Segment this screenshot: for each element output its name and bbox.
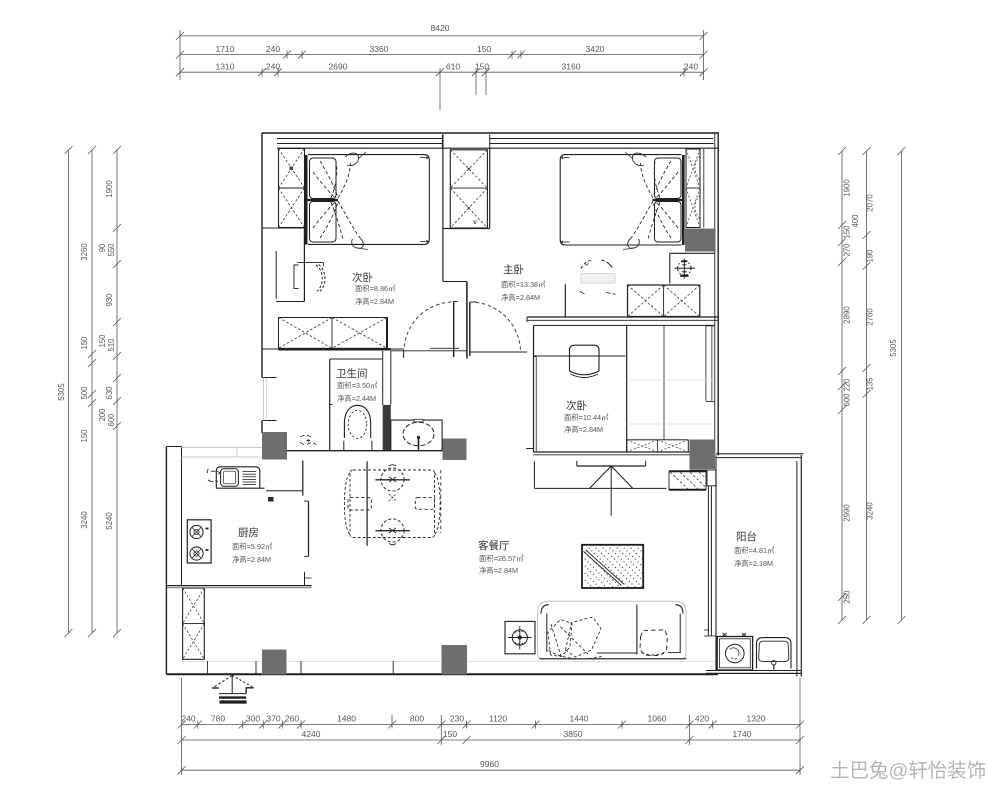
svg-text:阳台: 阳台: [736, 530, 757, 543]
svg-text:净高=2.44M: 净高=2.44M: [337, 394, 376, 403]
svg-text:净高=2.84M: 净高=2.84M: [564, 425, 603, 434]
svg-text:2890: 2890: [843, 306, 852, 324]
svg-text:930: 930: [105, 293, 114, 307]
svg-text:150: 150: [443, 729, 457, 739]
svg-text:面积=8.86㎡: 面积=8.86㎡: [355, 284, 396, 293]
svg-text:200: 200: [98, 408, 107, 422]
svg-text:510: 510: [107, 338, 116, 352]
svg-text:2690: 2690: [329, 62, 348, 72]
svg-text:5240: 5240: [105, 512, 114, 530]
svg-text:土巴兔@轩怡装饰: 土巴兔@轩怡装饰: [830, 760, 986, 782]
svg-text:1480: 1480: [337, 714, 356, 724]
svg-text:净高=2.84M: 净高=2.84M: [355, 297, 394, 306]
svg-text:780: 780: [211, 714, 225, 724]
svg-text:面积=26.57㎡: 面积=26.57㎡: [479, 554, 524, 563]
svg-text:630: 630: [105, 386, 114, 400]
svg-text:150: 150: [80, 429, 89, 443]
svg-text:800: 800: [410, 714, 424, 724]
svg-text:客餐厅: 客餐厅: [478, 539, 510, 552]
svg-text:3420: 3420: [586, 44, 605, 54]
svg-text:1060: 1060: [648, 714, 667, 724]
svg-text:135: 135: [866, 377, 875, 391]
svg-text:3160: 3160: [562, 62, 581, 72]
svg-text:3850: 3850: [564, 729, 583, 739]
svg-text:600: 600: [843, 393, 852, 407]
svg-text:150: 150: [475, 62, 489, 72]
svg-text:230: 230: [450, 714, 464, 724]
svg-text:250: 250: [843, 590, 852, 604]
svg-text:1740: 1740: [733, 729, 752, 739]
svg-text:次卧: 次卧: [352, 271, 373, 284]
svg-text:9960: 9960: [480, 759, 499, 769]
svg-text:厨房: 厨房: [238, 526, 259, 539]
svg-text:3240: 3240: [80, 511, 89, 529]
svg-text:370: 370: [266, 714, 280, 724]
svg-text:次卧: 次卧: [566, 399, 587, 412]
svg-text:3360: 3360: [370, 44, 389, 54]
svg-text:4240: 4240: [302, 729, 321, 739]
svg-text:8420: 8420: [431, 23, 450, 33]
svg-text:2070: 2070: [866, 194, 875, 212]
svg-text:5305: 5305: [57, 383, 66, 401]
svg-text:1310: 1310: [216, 62, 235, 72]
svg-text:240: 240: [266, 44, 280, 54]
svg-text:1900: 1900: [105, 180, 114, 198]
svg-text:5305: 5305: [889, 339, 898, 357]
svg-text:270: 270: [843, 243, 852, 257]
svg-text:3260: 3260: [80, 243, 89, 261]
svg-text:1320: 1320: [747, 714, 766, 724]
svg-text:260: 260: [285, 714, 299, 724]
svg-text:2760: 2760: [866, 308, 875, 326]
svg-text:1120: 1120: [489, 714, 508, 724]
svg-text:420: 420: [695, 714, 709, 724]
svg-text:550: 550: [107, 243, 116, 257]
svg-text:净高=2.84M: 净高=2.84M: [232, 555, 271, 564]
svg-text:400: 400: [851, 214, 860, 228]
svg-text:1710: 1710: [216, 44, 235, 54]
svg-text:面积=13.38㎡: 面积=13.38㎡: [501, 280, 546, 289]
svg-text:300: 300: [246, 714, 260, 724]
svg-text:卫生间: 卫生间: [336, 367, 368, 380]
svg-text:600: 600: [107, 413, 116, 427]
svg-text:190: 190: [866, 249, 875, 263]
svg-text:面积=3.50㎡: 面积=3.50㎡: [337, 381, 378, 390]
svg-text:500: 500: [80, 386, 89, 400]
svg-text:3240: 3240: [866, 502, 875, 520]
svg-text:610: 610: [446, 62, 460, 72]
svg-text:150: 150: [477, 44, 491, 54]
svg-text:1900: 1900: [843, 179, 852, 197]
svg-text:1440: 1440: [570, 714, 589, 724]
svg-text:面积=4.81㎡: 面积=4.81㎡: [734, 546, 775, 555]
svg-text:240: 240: [684, 62, 698, 72]
svg-text:90: 90: [98, 243, 107, 252]
svg-text:净高=2.18M: 净高=2.18M: [734, 559, 773, 568]
svg-text:净高=2.84M: 净高=2.84M: [501, 293, 540, 302]
svg-text:净高=2.84M: 净高=2.84M: [479, 566, 518, 575]
svg-text:2990: 2990: [843, 504, 852, 522]
svg-text:240: 240: [181, 714, 195, 724]
svg-text:面积=10.44㎡: 面积=10.44㎡: [564, 413, 609, 422]
svg-text:240: 240: [266, 62, 280, 72]
svg-text:主卧: 主卧: [503, 263, 524, 276]
svg-text:150: 150: [80, 336, 89, 350]
svg-text:220: 220: [843, 378, 852, 392]
svg-text:150: 150: [98, 334, 107, 348]
svg-text:面积=5.92㎡: 面积=5.92㎡: [232, 542, 273, 551]
